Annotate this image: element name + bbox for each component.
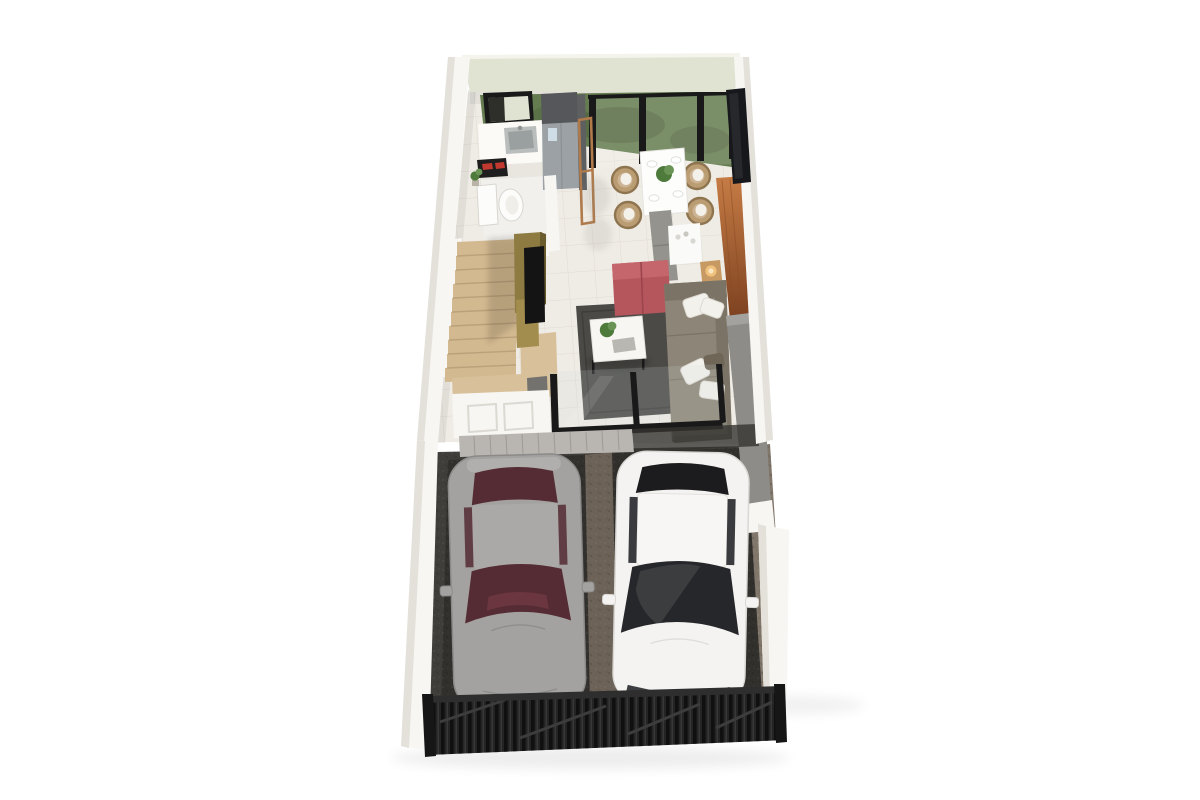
console-decor — [675, 234, 680, 239]
back-wall — [462, 55, 740, 92]
console-shelf — [668, 223, 702, 265]
wicker-chair — [612, 167, 638, 193]
gray-car-roof — [472, 503, 560, 569]
fence-post-right — [774, 684, 787, 743]
tv-panel — [524, 246, 545, 324]
wicker-chair — [687, 198, 713, 224]
toilet-tank — [477, 184, 498, 226]
kitchen-window-open-pane — [488, 97, 505, 122]
white-car-mirror — [745, 597, 758, 607]
wicker-chair — [684, 163, 710, 189]
coffee-table-top — [590, 316, 646, 362]
wicker-chair — [615, 202, 641, 228]
coffee-table — [586, 316, 650, 374]
gray-car-side-window — [464, 507, 474, 567]
gray-car-side-window — [558, 505, 568, 565]
white-car-side-window — [628, 497, 637, 563]
sink-basin — [508, 130, 534, 150]
centerpiece-plant-leaf — [664, 165, 674, 175]
lamp-glow — [708, 268, 713, 273]
potted-plant-leaf — [476, 169, 483, 176]
gray-car-rear-glass — [471, 466, 558, 505]
faucet — [518, 126, 523, 131]
gray-car — [436, 453, 597, 711]
gray-car-mirror — [582, 582, 594, 592]
floor-plan-render — [0, 0, 1200, 800]
white-car-side-window — [726, 499, 735, 565]
chair-shadow — [584, 217, 612, 251]
white-car — [600, 450, 761, 708]
console-decor — [683, 231, 688, 236]
plant-pot — [472, 180, 479, 186]
entry-paneled-wall — [452, 390, 551, 438]
console-decor — [690, 238, 695, 243]
white-car-mirror — [602, 594, 615, 604]
white-car-roof — [636, 493, 727, 567]
fridge-upper-cabinet — [541, 92, 578, 126]
cooktop-burner — [495, 162, 505, 169]
table-plant-leaf — [608, 322, 617, 331]
fridge-dispenser — [548, 128, 557, 141]
gray-car-mirror — [440, 586, 452, 596]
floor-plan-canvas — [0, 0, 1200, 800]
chair-shadow — [582, 177, 610, 215]
cooktop-burner — [482, 163, 493, 170]
